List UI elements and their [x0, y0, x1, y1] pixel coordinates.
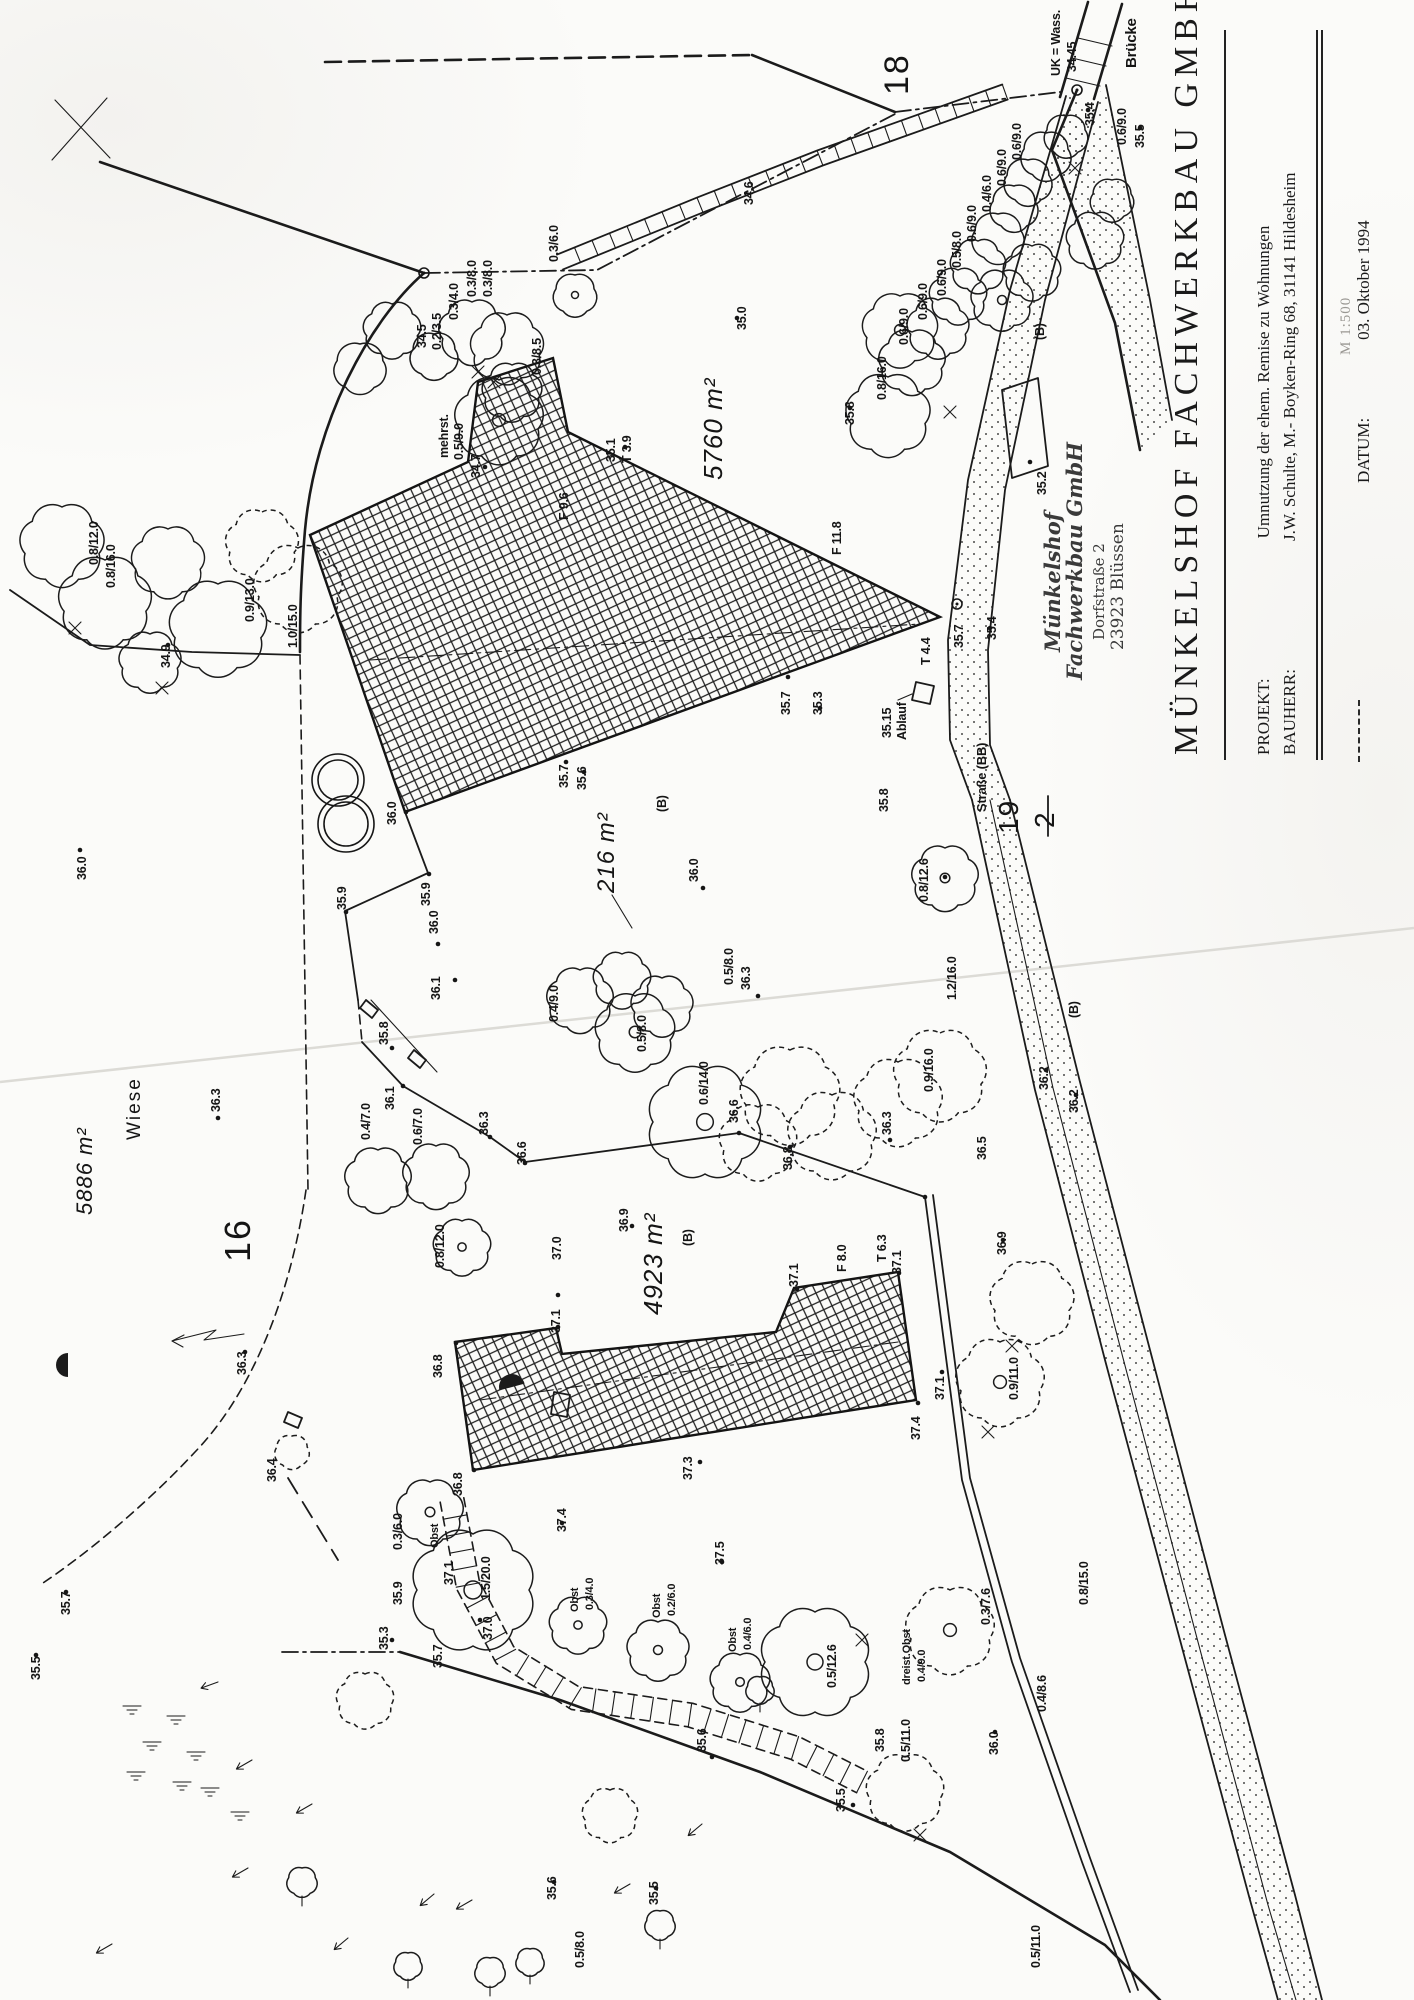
scale-note: M 1:500: [1338, 297, 1355, 355]
stamp-line-4: 23923 Blüssen: [1108, 523, 1128, 650]
map-label: 35.1: [604, 438, 618, 462]
map-label: 35.15: [880, 707, 894, 738]
map-label: 36.3: [477, 1111, 491, 1135]
map-label: 36.3: [235, 1351, 249, 1375]
map-label: F 8.0: [835, 1244, 849, 1272]
ladder-rung: [731, 184, 737, 199]
ladder-rung: [443, 1515, 467, 1519]
tree-trunk: [736, 1678, 745, 1687]
map-label: 0.9/13.0: [243, 578, 257, 622]
map-label: 18: [878, 53, 916, 95]
tree-trunk: [425, 1507, 435, 1517]
paper-fold-line: [0, 928, 1414, 1082]
map-label: 37.1: [933, 1376, 947, 1400]
ladder-rung: [834, 144, 839, 159]
datum-value: 03. Oktober 1994: [1354, 220, 1373, 339]
map-label: 35.0: [735, 306, 749, 330]
ladder-rung: [516, 1656, 529, 1676]
datum-row: DATUM:03. Oktober 1994: [1354, 220, 1374, 483]
ladder-edge: [464, 1498, 868, 1772]
scanned-site-plan-page: UK = Wass.34.45Brücke35.435.50.6/9.01834…: [0, 0, 1414, 2000]
titleblock-rule-3: [1321, 30, 1323, 760]
map-label: UK = Wass.: [1049, 10, 1063, 76]
survey-point: [916, 1401, 921, 1406]
map-label: 35.8: [377, 1021, 391, 1045]
tree-symbol: [956, 1339, 1044, 1426]
map-label: 1.2/16.0: [945, 956, 959, 1000]
marsh-symbol: [231, 1812, 249, 1820]
ladder-rung: [679, 205, 685, 220]
map-label: 37.3: [681, 1456, 695, 1480]
ladder-rung: [453, 1566, 477, 1570]
survey-point: [216, 1116, 221, 1121]
survey-point: [556, 1293, 561, 1298]
tree-symbol: [740, 1047, 840, 1145]
map-label: F 11.8: [830, 521, 844, 555]
tree-symbol: [990, 1262, 1074, 1345]
map-label: 0.6/9.0: [995, 149, 1009, 186]
manhole-center: [1076, 89, 1079, 92]
stamp-line-2: Fachwerkbau GmbH: [1062, 442, 1087, 680]
ladder-rung: [851, 138, 856, 153]
map-label: 36.3: [739, 966, 753, 990]
map-label: 36.0: [427, 910, 441, 934]
map-label: 0.3/4.0: [584, 1578, 596, 1610]
flow-arrow-icon: [420, 1894, 434, 1906]
survey-point: [923, 1195, 928, 1200]
map-label: 0.3/7.6: [979, 1588, 993, 1625]
map-label: Straße (BB): [974, 743, 989, 812]
titleblock-rule-1: [1224, 30, 1226, 760]
map-label: Obst: [569, 1587, 581, 1612]
titleblock-rule-dashed: [1358, 700, 1360, 762]
manhole-center: [956, 603, 959, 606]
tree-symbol: [275, 1435, 310, 1469]
map-label: 35.7: [557, 764, 571, 788]
map-label: 37.0: [481, 1616, 495, 1640]
tree-symbol: [345, 1148, 411, 1214]
survey-point: [851, 1803, 856, 1808]
flow-arrow-icon: [614, 1884, 630, 1893]
map-label: 1.5/20.0: [479, 1556, 493, 1600]
map-label: T 4.4: [919, 637, 933, 665]
map-label: 36.0: [385, 801, 399, 825]
survey-point: [78, 848, 83, 853]
map-label: 0.6/9.0: [1115, 108, 1129, 145]
map-label: 0.5/8.0: [573, 1931, 587, 1968]
marsh-symbol: [167, 1716, 185, 1724]
survey-point: [701, 886, 706, 891]
map-label: 35.9: [335, 886, 349, 910]
map-label: 0.5/11.0: [899, 1719, 913, 1762]
map-label: 37.4: [555, 1508, 569, 1532]
survey-point: [698, 1460, 703, 1465]
map-label: 0.6/7.0: [411, 1108, 425, 1145]
map-label: 0.3/8.0: [465, 260, 479, 297]
survey-point: [888, 1138, 893, 1143]
flow-arrow-icon: [96, 1944, 112, 1953]
map-label: 35.6: [695, 1728, 709, 1752]
marsh-symbol: [143, 1742, 161, 1750]
map-label: 0.4/7.0: [359, 1103, 373, 1140]
map-label: 35.7: [59, 1591, 73, 1615]
tree-symbol: [645, 1911, 675, 1941]
map-label: 5886 m²: [72, 1127, 97, 1215]
ladder-rung: [806, 1746, 817, 1767]
map-label: 35.7: [952, 624, 966, 648]
map-label: 37.1: [549, 1309, 563, 1333]
map-label: 36.5: [975, 1136, 989, 1160]
survey-point: [737, 1131, 742, 1136]
map-label: 35.3: [811, 691, 825, 715]
map-label: 36.3: [880, 1111, 894, 1135]
tree-symbol: [553, 274, 597, 317]
map-label: 0.4/9.0: [916, 1650, 928, 1682]
map-label: Obst: [727, 1627, 739, 1652]
map-label: 0.8/12.0: [433, 1224, 447, 1268]
tree-symbol: [866, 1755, 943, 1831]
map-label: 35.6: [575, 766, 589, 790]
map-label: 0.6/14.0: [697, 1061, 711, 1105]
x-mark-icon: [156, 682, 168, 694]
ladder-rung: [697, 198, 703, 213]
map-label: 16: [217, 1218, 258, 1262]
map-label: (B): [681, 1229, 695, 1246]
survey-point: [710, 1755, 715, 1760]
ladder-rung: [791, 1737, 798, 1760]
tree-symbol: [516, 1949, 544, 1977]
ladder-rung: [627, 226, 633, 241]
map-label: 0.4/8.6: [1035, 1675, 1049, 1712]
map-label: 36.1: [429, 976, 443, 1000]
survey-cross-icon: [52, 98, 110, 160]
ladder-rung: [631, 1695, 635, 1719]
map-label: 36.6: [515, 1141, 529, 1165]
map-label: 0.5/8.0: [950, 231, 964, 268]
map-label: 35.8: [843, 401, 857, 425]
map-label: 0.5/12.6: [825, 1644, 839, 1688]
ladder-rung: [721, 1715, 728, 1738]
x-mark-icon: [944, 406, 956, 418]
map-label: 0.6/9.0: [897, 308, 911, 345]
map-label: 0.3/6.0: [391, 1513, 405, 1550]
company-title: MÜNKELSHOF FACHWERKBAU GMBH: [1168, 0, 1206, 755]
map-label: 35.7: [431, 1644, 445, 1668]
map-label: 37.1: [442, 1561, 456, 1585]
ladder-rung: [840, 1763, 851, 1784]
map-label: 37.4: [909, 1416, 923, 1440]
projekt-value: Umnutzung der ehem. Remise zu Wohnungen: [1254, 226, 1273, 539]
tree-symbol: [334, 343, 386, 394]
road-surface-lower: [972, 800, 1322, 2000]
ladder-rung: [574, 247, 580, 262]
map-label: 35.8: [873, 1728, 887, 1752]
map-label: 0.5/8.0: [635, 1015, 649, 1052]
ladder-rung: [644, 219, 650, 234]
tree-symbol: [363, 302, 420, 359]
map-label: 1.0/15.0: [286, 604, 300, 648]
ladder-rung: [592, 240, 598, 255]
ladder-rung: [1002, 84, 1007, 99]
map-label: 36.2: [1037, 1066, 1051, 1090]
bauherr-value: J.W. Schulte, M.- Boyken-Ring 68, 31141 …: [1280, 173, 1299, 541]
tree-trunk: [994, 1376, 1007, 1389]
x-mark-icon: [69, 622, 81, 634]
parcel-boundaries: [10, 55, 1160, 2000]
x-mark-icon: [472, 366, 484, 378]
tree-symbol: [972, 213, 1024, 264]
tree-trunk: [944, 1624, 957, 1637]
map-label: 0.5/9.0: [452, 423, 466, 460]
tree-symbol: [894, 1030, 987, 1122]
map-label: Obst: [429, 1523, 441, 1548]
map-label: 36.9: [995, 1231, 1009, 1255]
map-label: 0.8/16.0: [875, 356, 889, 400]
parcel-fraction-numerator: 19: [993, 799, 1024, 834]
map-label: 36.2: [1067, 1089, 1081, 1113]
map-label: Ablauf: [895, 701, 909, 740]
tree-symbol: [336, 1672, 393, 1729]
tree-symbol: [287, 1868, 317, 1898]
ladder-rung: [650, 1697, 654, 1721]
x-mark-icon: [1006, 1340, 1018, 1352]
map-label: 0.3/6.0: [547, 225, 561, 262]
map-label: mehrst.: [437, 414, 451, 458]
ladder-rung: [609, 233, 615, 248]
map-label: 0.4/9.0: [547, 985, 561, 1022]
ladder-rung: [688, 1703, 692, 1727]
tree-symbol: [582, 1788, 637, 1842]
map-label: 0.3/8.0: [481, 260, 495, 297]
map-label: (B): [1067, 1001, 1081, 1018]
map-label: 0.5/11.0: [1029, 1925, 1043, 1968]
map-label: 35.3: [377, 1626, 391, 1650]
map-label: 36.0: [75, 856, 89, 880]
map-label: 4923 m²: [638, 1212, 668, 1315]
tree-symbol: [627, 1620, 689, 1681]
survey-point: [472, 1468, 477, 1473]
map-label: 35.8: [877, 788, 891, 812]
ladder-rung: [592, 1689, 596, 1713]
survey-point: [404, 810, 409, 815]
marsh-symbol: [173, 1782, 191, 1790]
map-label: 37.1: [787, 1263, 801, 1287]
tree-trunk: [807, 1654, 823, 1670]
map-label: 35.2: [1035, 471, 1049, 495]
map-labels: UK = Wass.34.45Brücke35.435.50.6/9.01834…: [29, 10, 1147, 1968]
map-label: 0.6/9.0: [916, 283, 930, 320]
survey-point: [427, 872, 432, 877]
ladder-edge: [563, 100, 1008, 270]
ladder-rung: [551, 1677, 564, 1697]
map-label: 36.1: [383, 1086, 397, 1110]
tree-symbol: [762, 1609, 869, 1716]
map-label: 37.5: [713, 1541, 727, 1565]
map-label: 35.5: [834, 1788, 848, 1812]
flow-arrow-icon: [201, 1682, 218, 1689]
survey-point: [454, 1341, 459, 1346]
flow-arrow-icon: [334, 1938, 348, 1950]
flow-arrow-icon: [296, 1804, 312, 1813]
stamp-line-3: Dorfstraße 2: [1090, 543, 1108, 640]
survey-point: [756, 994, 761, 999]
ladder-rung: [739, 1720, 746, 1743]
ladder-rung: [800, 157, 806, 172]
map-label: 35.5: [647, 1881, 661, 1905]
ladder-rung: [774, 1731, 781, 1754]
tree-symbol: [710, 1653, 770, 1712]
ladder-rung: [450, 1549, 474, 1553]
ladder-rung: [868, 132, 873, 147]
map-label: 35.7: [779, 691, 793, 715]
map-label: 34.5: [415, 324, 429, 348]
map-label: 0.5/8.0: [722, 948, 736, 985]
map-label: 34.9: [159, 644, 173, 668]
map-label: (B): [655, 795, 669, 812]
tree-trunk: [572, 292, 579, 299]
ladder-rung: [534, 1666, 547, 1686]
map-label: 37.0: [550, 1236, 564, 1260]
map-label: 34.45: [1065, 41, 1079, 72]
map-label: 36.8: [431, 1354, 445, 1378]
manhole-center: [423, 272, 426, 275]
marsh-symbol: [201, 1788, 219, 1796]
datum-label: DATUM:: [1354, 418, 1373, 483]
map-label: 0.6/9.0: [965, 205, 979, 242]
map-label: 0.4/6.0: [742, 1618, 754, 1650]
map-label: 0.3/4.0: [447, 283, 461, 320]
tree-symbol: [593, 952, 650, 1009]
tree-trunk: [574, 1621, 582, 1629]
parcel-fraction-denominator: 2: [1029, 810, 1060, 828]
ladder-rung: [969, 96, 974, 111]
projekt-label: PROJEKT:: [1254, 678, 1273, 755]
survey-point: [943, 875, 948, 880]
survey-point: [453, 978, 458, 983]
map-label: dreist.Obst: [901, 1629, 913, 1685]
marsh-symbol: [123, 1706, 141, 1714]
building-remise: [310, 358, 940, 812]
map-label: 34.6: [742, 181, 756, 205]
survey-point: [1028, 460, 1033, 465]
x-mark-icon: [982, 1426, 994, 1438]
marsh-symbol: [187, 1752, 205, 1760]
map-label: 35.9: [391, 1581, 405, 1605]
map-label: T 6.3: [875, 1234, 889, 1262]
projekt-row: PROJEKT:Umnutzung der ehem. Remise zu Wo…: [1254, 226, 1274, 755]
ladder-rung: [823, 1754, 834, 1775]
ladder-rung: [662, 212, 668, 227]
map-label: 0.8/12.0: [87, 521, 101, 565]
map-label: 5760 m²: [698, 377, 728, 480]
flow-arrow-icon: [236, 1760, 252, 1769]
map-label: 0.8/16.0: [104, 544, 118, 588]
tree-trunk: [697, 1114, 714, 1131]
map-label: 37.1: [890, 1250, 904, 1274]
tree-trunk: [654, 1646, 663, 1655]
map-label: 0.4/6.0: [980, 175, 994, 212]
map-label: Obst: [651, 1593, 663, 1618]
survey-point: [786, 675, 791, 680]
map-label: 35.5: [29, 1656, 43, 1680]
map-label: 36.0: [687, 858, 701, 882]
ladder-rung: [857, 1771, 868, 1792]
map-label: 216 m²: [593, 812, 620, 894]
ladder-rung: [901, 120, 906, 135]
map-label: 0.8/15.0: [1077, 1561, 1091, 1605]
map-label: 0.2/6.0: [666, 1584, 678, 1616]
flow-arrow-icon: [456, 1900, 472, 1909]
ladder-rung: [494, 1649, 515, 1660]
survey-point: [436, 942, 441, 947]
marsh-symbol: [127, 1772, 145, 1780]
ladder-rung: [935, 108, 940, 123]
survey-point: [483, 465, 488, 470]
map-label: 35.5: [1133, 124, 1147, 148]
survey-point: [940, 1370, 945, 1375]
map-label: 36.6: [727, 1099, 741, 1123]
flow-arrow-icon: [688, 1824, 702, 1836]
map-label: 0.6/9.0: [1010, 123, 1024, 160]
stream-bank: [1052, 85, 1172, 450]
tree-symbol: [788, 1092, 876, 1179]
map-label: 36.8: [451, 1472, 465, 1496]
tree-symbol: [746, 1677, 774, 1705]
ladder-rung: [714, 191, 720, 206]
ladder-rung: [918, 114, 923, 129]
survey-point: [564, 760, 569, 765]
tree-trunk: [998, 296, 1007, 305]
map-label: (B): [1033, 323, 1047, 340]
tree-symbol: [475, 1958, 505, 1988]
titleblock-rule-2: [1316, 30, 1318, 760]
map-label: 35.9: [419, 882, 433, 906]
ladder-rung: [985, 90, 990, 105]
map-label: 0.9/11.0: [1007, 1357, 1021, 1400]
map-label: 0.3/8.5: [530, 338, 544, 375]
tree-symbol: [403, 1144, 469, 1210]
tree-symbol: [394, 1953, 422, 1981]
ladder-rung: [885, 126, 890, 141]
ladder-rung: [756, 1726, 763, 1749]
tree-trunk: [458, 1243, 466, 1251]
map-label: T 3.9: [620, 435, 634, 463]
bauherr-label: BAUHERR:: [1280, 669, 1299, 755]
map-label: 0.9/16.0: [922, 1048, 936, 1092]
tree-symbol: [132, 527, 205, 599]
survey-points: [34, 85, 1143, 1890]
map-label: 36.8: [781, 1146, 795, 1170]
map-label: Brücke: [1123, 18, 1140, 68]
map-label: 36.0: [987, 1731, 1001, 1755]
map-label: 0.6/9.0: [935, 259, 949, 296]
map-label: F 9.6: [557, 492, 571, 520]
map-label: 0.2/3.5: [430, 313, 444, 350]
bauherr-row: BAUHERR:J.W. Schulte, M.- Boyken-Ring 68…: [1280, 173, 1300, 755]
map-label: 36.9: [617, 1208, 631, 1232]
map-label: Wiese: [124, 1077, 145, 1140]
ladder-rung: [669, 1700, 673, 1724]
map-label: 35.4: [1083, 102, 1097, 126]
map-label: 35.6: [545, 1876, 559, 1900]
map-label: 36.3: [209, 1088, 223, 1112]
map-label: 0.8/12.6: [917, 858, 931, 902]
flow-arrow-icon: [232, 1868, 248, 1877]
map-label: 34.7: [469, 454, 483, 478]
map-label: 35.4: [985, 616, 999, 640]
map-label: 36.4: [265, 1458, 279, 1482]
ladder-rung: [612, 1692, 616, 1716]
